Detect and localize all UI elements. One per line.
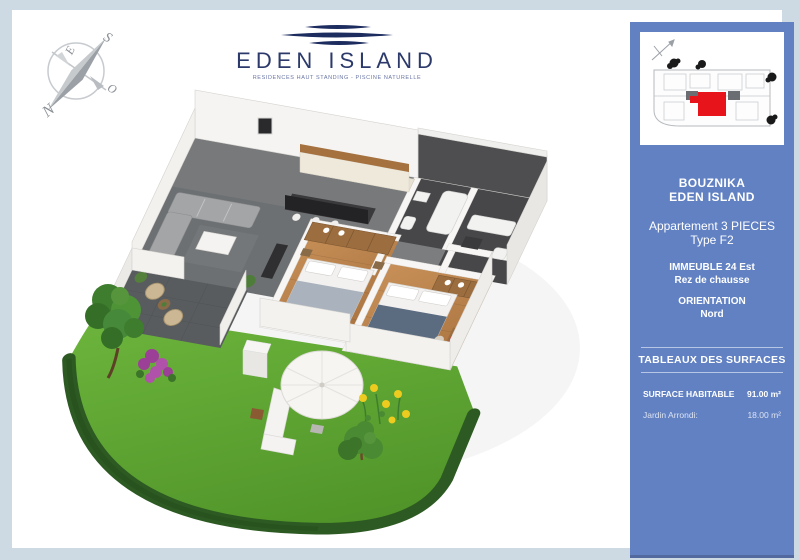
surfaces-title: TABLEAUX DES SURFACES (630, 354, 794, 366)
parasol (281, 351, 363, 419)
surface-label: Jardin Arrondi: (643, 410, 698, 420)
building-label: IMMEUBLE 24 Est (630, 261, 794, 274)
info-sidebar: BOUZNIKA EDEN ISLAND Appartement 3 PIECE… (630, 22, 794, 558)
surface-row: SURFACE HABITABLE 91.00 m² (643, 389, 781, 399)
apartment-type-code: Type F2 (630, 233, 794, 247)
surface-value: 18.00 m² (747, 410, 781, 420)
surface-value: 91.00 m² (747, 389, 781, 399)
thumbnail-compass-icon (652, 40, 674, 60)
wall-picture (258, 118, 272, 134)
garden-stool (250, 408, 264, 420)
orientation-value: Nord (630, 308, 794, 321)
surfaces-table: SURFACE HABITABLE 91.00 m² Jardin Arrond… (630, 389, 794, 420)
project-name: EDEN ISLAND (630, 190, 794, 204)
compass-e: E (62, 43, 79, 57)
divider (641, 372, 783, 373)
orientation-label: ORIENTATION (630, 295, 794, 308)
brochure-page: N S E O EDEN ISLAND RESIDENCES HAUT STAN… (12, 10, 782, 548)
apartment-type: Appartement 3 PIECES (630, 219, 794, 233)
planter (243, 340, 271, 378)
floor-label: Rez de chausse (630, 274, 794, 287)
floor-plan-render (60, 58, 600, 548)
stair-core (728, 91, 740, 100)
compass-n: N (39, 100, 60, 121)
project-city: BOUZNIKA (630, 176, 794, 190)
site-plan-thumbnail (640, 32, 784, 145)
compass-s: S (100, 30, 114, 46)
logo-waves-icon (267, 20, 407, 50)
surface-label: SURFACE HABITABLE (643, 389, 734, 399)
surface-row: Jardin Arrondi: 18.00 m² (643, 410, 781, 420)
divider (641, 347, 783, 348)
